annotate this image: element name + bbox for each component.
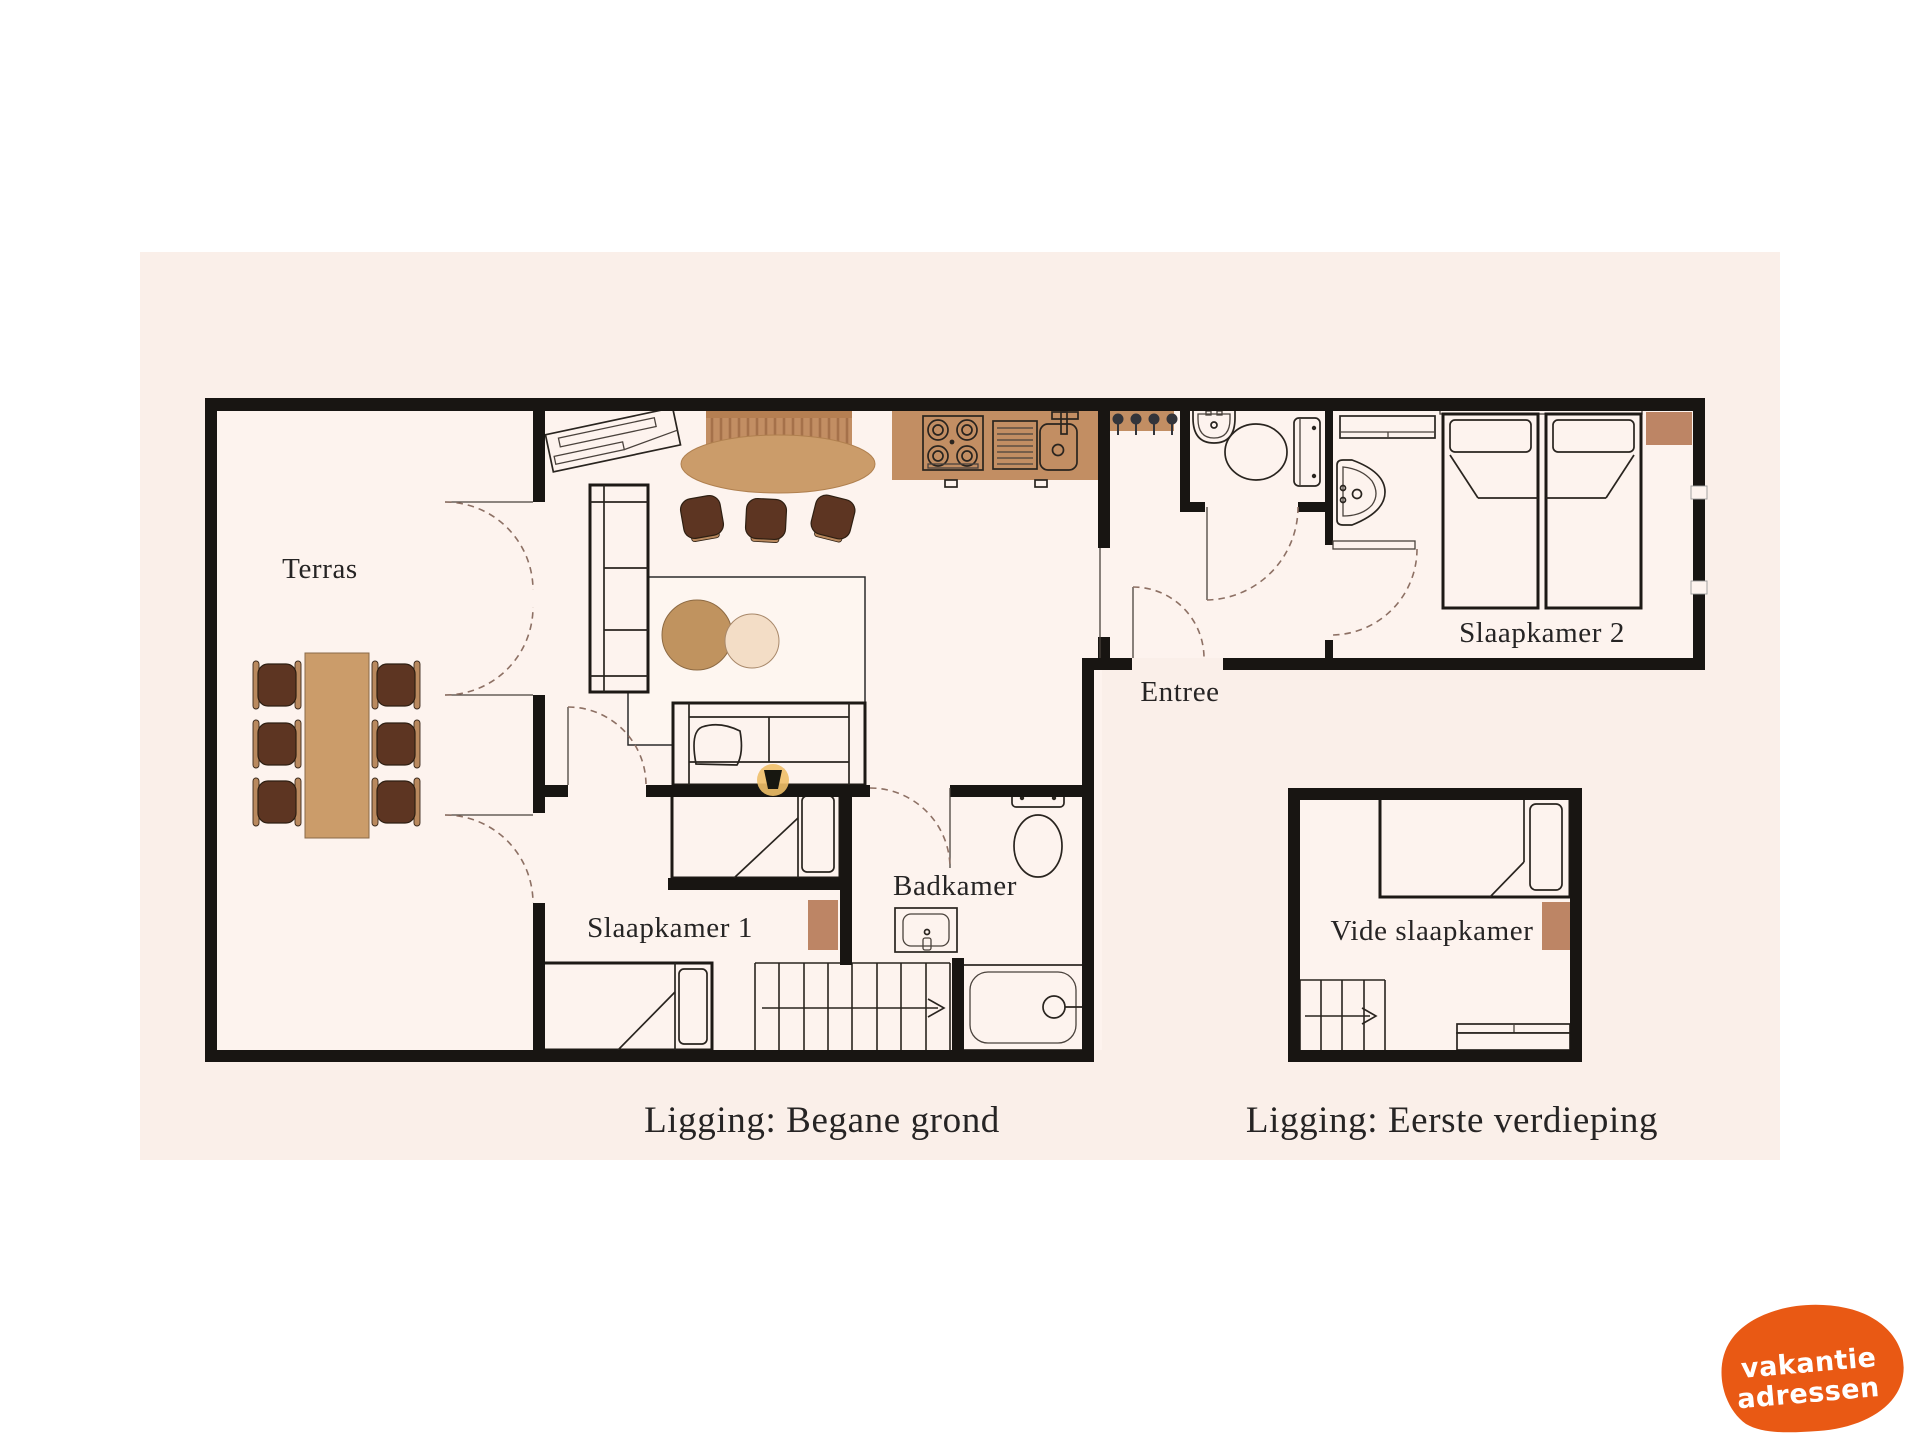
- bathtub-icon: [962, 965, 1084, 1050]
- chair-icon: [745, 498, 787, 543]
- rug: [1542, 902, 1572, 950]
- toilet-icon: [1225, 418, 1320, 486]
- caption-ground-floor: Ligging: Begane grond: [644, 1100, 1000, 1141]
- chair-icon: [372, 661, 420, 709]
- shower-icon: [895, 908, 957, 952]
- rug: [808, 900, 838, 950]
- round-rug: [662, 600, 732, 670]
- room-label-vide: Vide slaapkamer: [1331, 915, 1534, 947]
- room-label-entree: Entree: [1140, 676, 1219, 708]
- low-cabinet: [1457, 1024, 1570, 1050]
- floorplan-drawing: Terras Slaapkamer 1 Badkamer Entree Slaa…: [0, 0, 1920, 1440]
- floorplan-page: Terras Slaapkamer 1 Badkamer Entree Slaa…: [0, 0, 1920, 1440]
- bed-icon: [1546, 414, 1641, 608]
- bed-icon: [672, 790, 840, 878]
- room-label-badkamer: Badkamer: [893, 870, 1017, 902]
- window-icon: [1691, 581, 1707, 594]
- chair-icon: [372, 720, 420, 768]
- lamp-icon: [757, 764, 789, 796]
- room-label-terras: Terras: [282, 553, 358, 585]
- dining-table: [681, 435, 875, 493]
- chair-icon: [372, 778, 420, 826]
- caption-first-floor: Ligging: Eerste verdieping: [1246, 1100, 1658, 1141]
- chair-icon: [253, 661, 301, 709]
- sofa-icon: [590, 485, 648, 692]
- vakantieadressen-logo: vakantie adressen: [1721, 1305, 1903, 1433]
- chair-icon: [253, 778, 301, 826]
- room-label-slaapkamer1: Slaapkamer 1: [587, 912, 753, 944]
- bed-icon: [1380, 797, 1570, 897]
- terras-table: [305, 653, 369, 838]
- wall-shelf: [1340, 416, 1435, 438]
- chair-icon: [253, 720, 301, 768]
- terras-dining-set: [253, 653, 420, 838]
- rug: [1646, 412, 1692, 445]
- kitchen-counter: [892, 406, 1100, 487]
- window-icon: [1691, 486, 1707, 499]
- room-label-slaapkamer2: Slaapkamer 2: [1459, 617, 1625, 649]
- bed-icon: [543, 963, 712, 1050]
- bed-icon: [1443, 414, 1538, 608]
- toilet-icon: [1012, 790, 1064, 877]
- round-rug: [725, 614, 779, 668]
